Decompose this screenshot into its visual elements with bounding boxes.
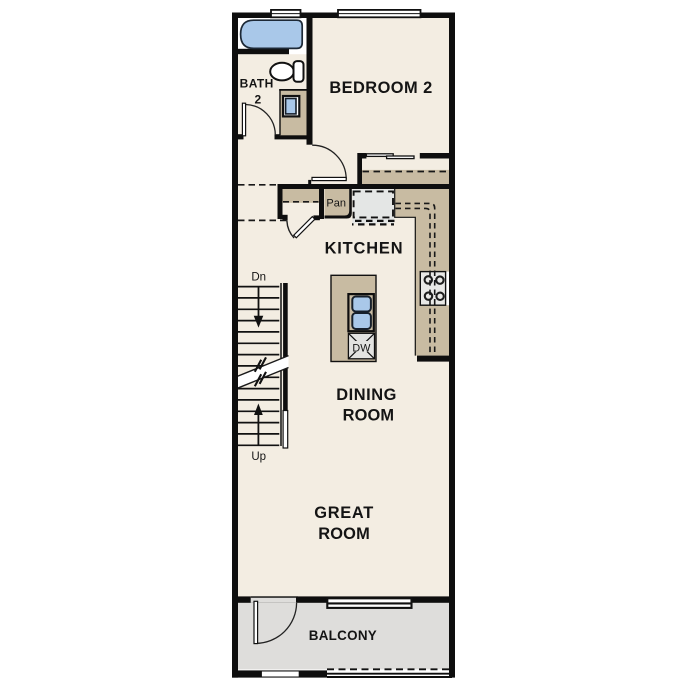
svg-text:DW: DW: [352, 343, 371, 355]
svg-text:DINING: DINING: [336, 386, 397, 404]
svg-text:BALCONY: BALCONY: [309, 628, 377, 643]
svg-text:Dn: Dn: [251, 271, 266, 283]
svg-text:KITCHEN: KITCHEN: [325, 240, 404, 258]
svg-text:ROOM: ROOM: [343, 407, 395, 425]
svg-text:ROOM: ROOM: [318, 525, 370, 543]
svg-text:GREAT: GREAT: [314, 504, 374, 522]
svg-text:2: 2: [254, 93, 261, 107]
svg-text:Up: Up: [251, 451, 266, 463]
svg-text:Pan: Pan: [326, 198, 346, 210]
svg-text:BATH: BATH: [240, 76, 274, 90]
svg-text:BEDROOM 2: BEDROOM 2: [329, 79, 432, 97]
